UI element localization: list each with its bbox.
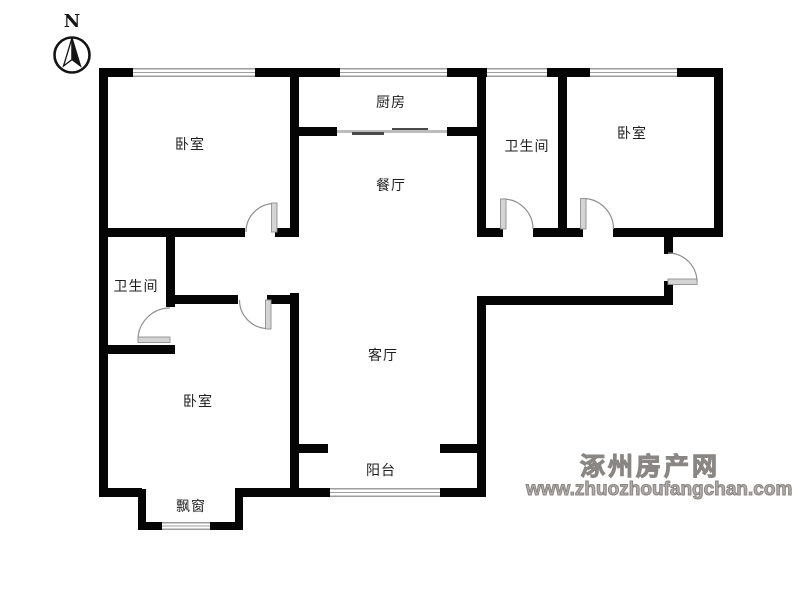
floor-plan: N — [0, 0, 800, 600]
door-arc-bedroom-top-right — [583, 199, 614, 230]
door-arc-bathroom-left — [138, 308, 170, 340]
room-label-bedroom-top-left: 卧室 — [175, 134, 205, 154]
watermark-site-url: www.zhuozhoufangchan.com — [526, 480, 774, 501]
door-leaf-bathroom-left — [138, 337, 170, 343]
watermark-site-name: 涿州房产网 — [526, 454, 774, 480]
room-label-bedroom-top-right: 卧室 — [617, 123, 647, 143]
door-leaf-bathroom-top — [501, 199, 507, 229]
door-leaf-entry — [668, 279, 697, 285]
door-leaf-bedroom-bottom-left — [266, 300, 272, 329]
door-leaf-bedroom-top-right — [581, 199, 587, 230]
door-arc-bedroom-bottom-left — [240, 300, 269, 329]
room-label-living-room: 客厅 — [368, 345, 398, 365]
room-label-bedroom-bottom-left: 卧室 — [183, 391, 213, 411]
room-label-bathroom-top: 卫生间 — [505, 136, 550, 156]
room-label-bathroom-left: 卫生间 — [114, 276, 159, 296]
room-label-dining-room: 餐厅 — [376, 175, 406, 195]
watermark: 涿州房产网 www.zhuozhoufangchan.com — [526, 454, 774, 501]
door-leaf-bedroom-top-left — [272, 203, 278, 232]
door-arc-bedroom-top-left — [246, 204, 275, 233]
room-label-bay-window: 飘窗 — [176, 496, 206, 516]
doors-layer — [0, 0, 800, 600]
door-arc-entry — [668, 253, 697, 282]
room-label-kitchen: 厨房 — [376, 92, 406, 112]
door-arc-bathroom-top — [503, 199, 533, 229]
room-label-balcony: 阳台 — [366, 460, 396, 480]
